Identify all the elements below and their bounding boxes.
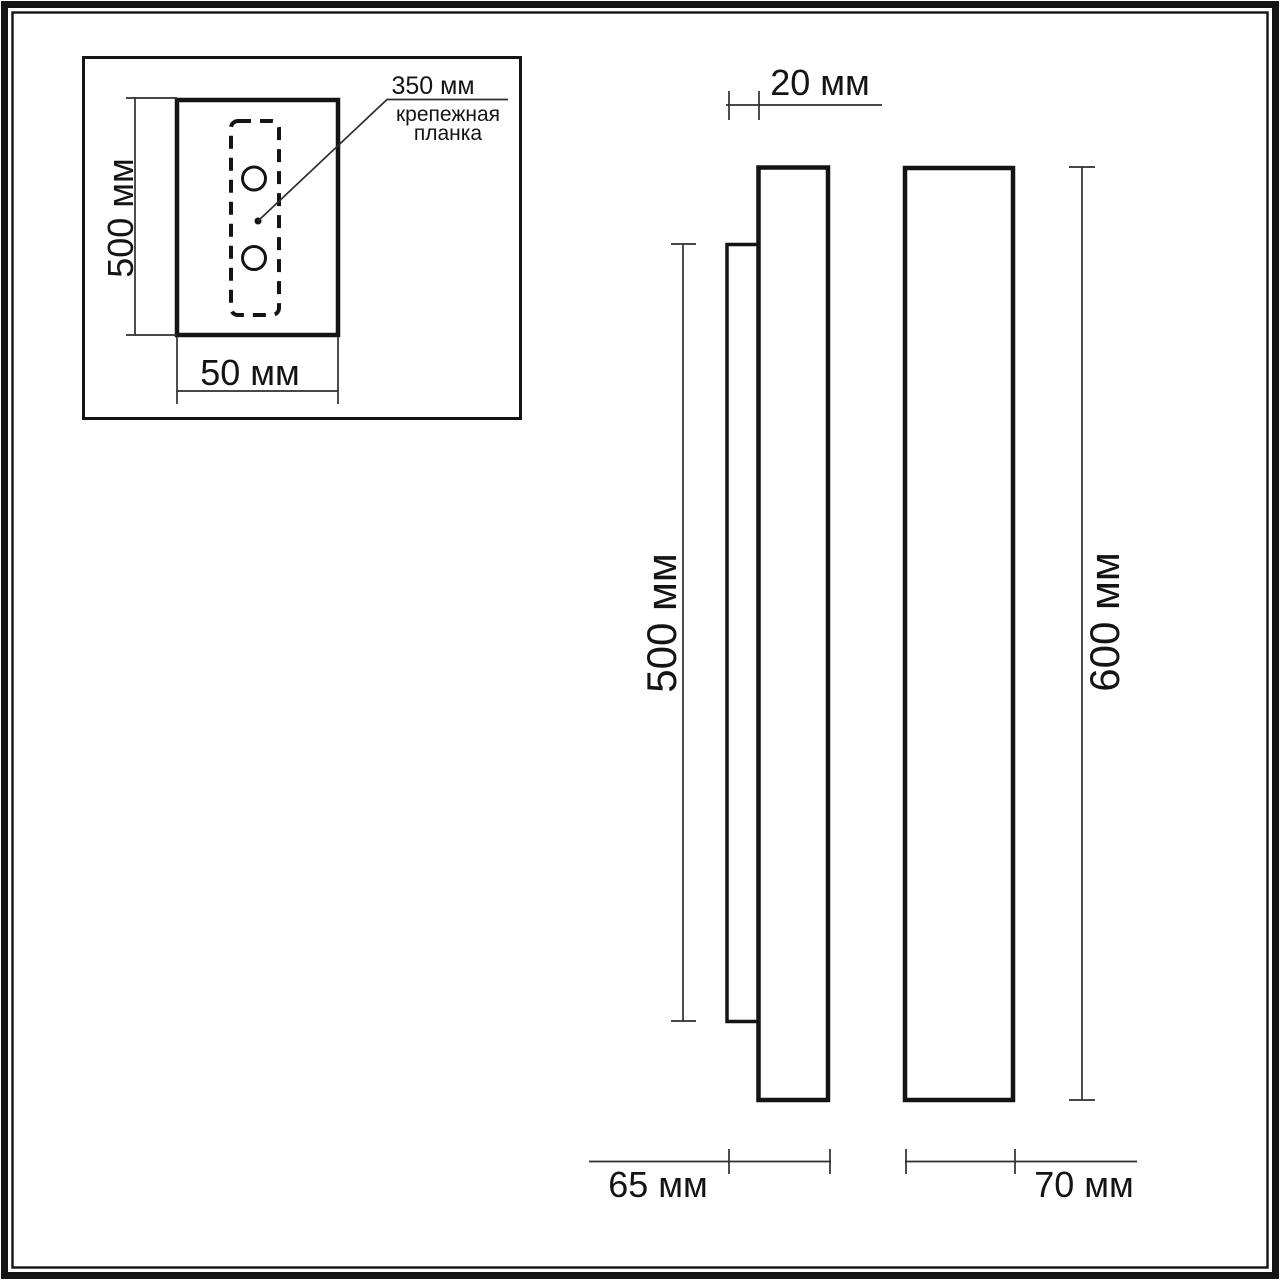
mounting-plate-side-outline (727, 245, 759, 1022)
front-width-label: 70 мм (1034, 1164, 1134, 1205)
lamp-body-side-outline (759, 168, 829, 1101)
mounting-detail-inset: 350 мм крепежная планка 500 мм 50 мм (84, 58, 521, 419)
inset-height-label: 500 мм (100, 158, 141, 278)
plate-height-dimension: 500 мм (638, 244, 696, 1021)
plate-height-label: 500 мм (638, 553, 685, 693)
front-width-dimension: 70 мм (905, 1149, 1137, 1205)
mounting-plate-dashed-outline (231, 121, 279, 315)
side-profile-view: 20 мм 500 мм 65 мм (589, 62, 882, 1205)
plate-depth-label: 20 мм (770, 62, 870, 103)
front-height-dimension: 600 мм (1069, 167, 1128, 1100)
total-depth-dimension: 65 мм (589, 1149, 831, 1205)
lamp-back-outline (177, 100, 338, 335)
technical-drawing-page: 350 мм крепежная планка 500 мм 50 мм (0, 0, 1280, 1280)
screw-hole-bottom (243, 247, 266, 270)
lamp-dimension-drawing: 350 мм крепежная планка 500 мм 50 мм (0, 0, 1280, 1280)
front-height-label: 600 мм (1081, 552, 1128, 692)
lamp-front-elevation-outline (905, 168, 1013, 1100)
inset-height-dimension: 500 мм (100, 98, 177, 335)
plate-note-line2: планка (414, 122, 483, 145)
front-elevation-view: 600 мм 70 мм (905, 167, 1137, 1205)
inset-width-dimension: 50 мм (177, 337, 338, 404)
screw-hole-top (243, 167, 266, 190)
plate-depth-dimension: 20 мм (726, 62, 882, 120)
inset-width-label: 50 мм (200, 352, 300, 393)
total-depth-label: 65 мм (608, 1164, 708, 1205)
plate-length-label: 350 мм (391, 72, 474, 100)
